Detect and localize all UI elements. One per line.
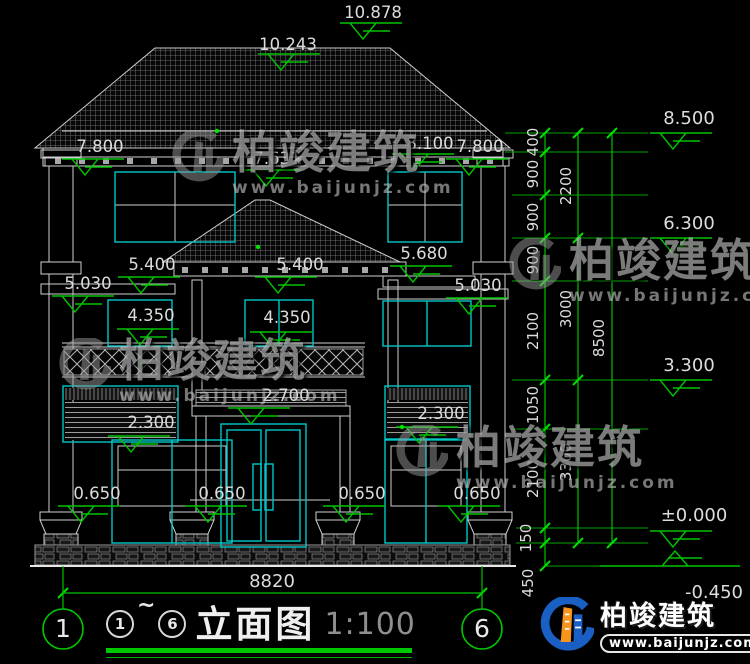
axis-number-left: 1 [55,614,71,643]
level-3300: 3.300 [663,355,715,376]
title-bubble-start: 1 [106,610,134,638]
chain-dim: 400 [524,128,542,157]
level-6300: 6.300 [663,213,715,234]
chain-dim-total: 8500 [590,319,608,357]
mark-louver-left: 2.300 [127,413,174,432]
mark-band-right: 5.030 [454,276,501,295]
mark-porch-eave-right: 5.400 [276,255,323,274]
company-logo: 柏竣建筑 www.baijunjz.com [536,597,750,659]
mark-parapet-left: 7.800 [76,137,123,156]
mark-band-left: 5.030 [64,274,111,293]
chain-dim: 2100 [524,460,542,498]
mark-ridge: 10.878 [344,3,402,22]
chain-dim: 900 [524,246,542,275]
plinth [35,545,510,565]
mark-parapet-right: 7.800 [456,137,503,156]
porch-roof [163,200,400,262]
mark-sill-4: 0.650 [453,484,500,503]
title-underline-thick [106,648,412,653]
company-logo-brand: 柏竣建筑 [600,603,716,631]
cad-elevation-drawing: 10.878 10.243 8.100 7.800 7.800 7.631 5.… [0,0,750,664]
chain-dim: 900 [524,203,542,232]
level-values: 8.500 6.300 3.300 ±0.000 -0.450 [661,108,743,603]
width-total-label: 8820 [249,571,295,592]
chain-dim: 150 [517,524,535,553]
chain-dim: 1050 [524,386,542,424]
main-roof [35,48,510,148]
mark-sill-1: 0.650 [73,484,120,503]
cad-canvas: 10.878 10.243 8.100 7.800 7.800 7.631 5.… [0,0,750,664]
level-zero: ±0.000 [661,505,728,526]
mark-eave-soffit: 7.631 [253,149,300,168]
chain-dim: 900 [524,160,542,189]
level-8500: 8.500 [663,108,715,129]
mark-window-head-left: 4.350 [127,306,174,325]
mark-canopy: 5.680 [400,244,447,263]
level-marker-minus450 [600,551,740,566]
chain-dim: 2100 [524,312,542,350]
balcony-railing [62,343,365,377]
snap-dots [140,129,404,429]
mark-louver-right: 2.300 [417,404,464,423]
mark-roof-front: 10.243 [259,35,317,54]
chain-dim: 2200 [557,167,575,205]
chain-values: 400 900 900 900 2100 1050 2100 150 450 2… [517,128,608,598]
axis-number-right: 6 [474,614,490,643]
mark-window-head-center: 4.350 [263,308,310,327]
company-logo-icon [536,597,594,659]
company-logo-url: www.baijunjz.com [600,634,750,653]
mark-sill-3: 0.650 [338,484,385,503]
title-underline-thin [106,657,412,658]
chain-dim: 3300 [557,443,575,481]
mark-porch-eave-left: 5.400 [128,255,175,274]
title-scale: 1:100 [324,607,415,642]
mark-eave-top: 8.100 [406,134,453,153]
title-tilde: ~ [137,593,155,618]
title-bubble-end: 6 [158,610,186,638]
drawing-title: 1 ~ 6 立面图 1:100 [106,601,416,647]
mark-sill-2: 0.650 [198,484,245,503]
chain-dim: 3000 [557,290,575,328]
chain-dim: 450 [519,569,537,598]
mark-balcony-rail: 2.700 [262,386,309,405]
title-text: 立面图 [195,606,315,643]
